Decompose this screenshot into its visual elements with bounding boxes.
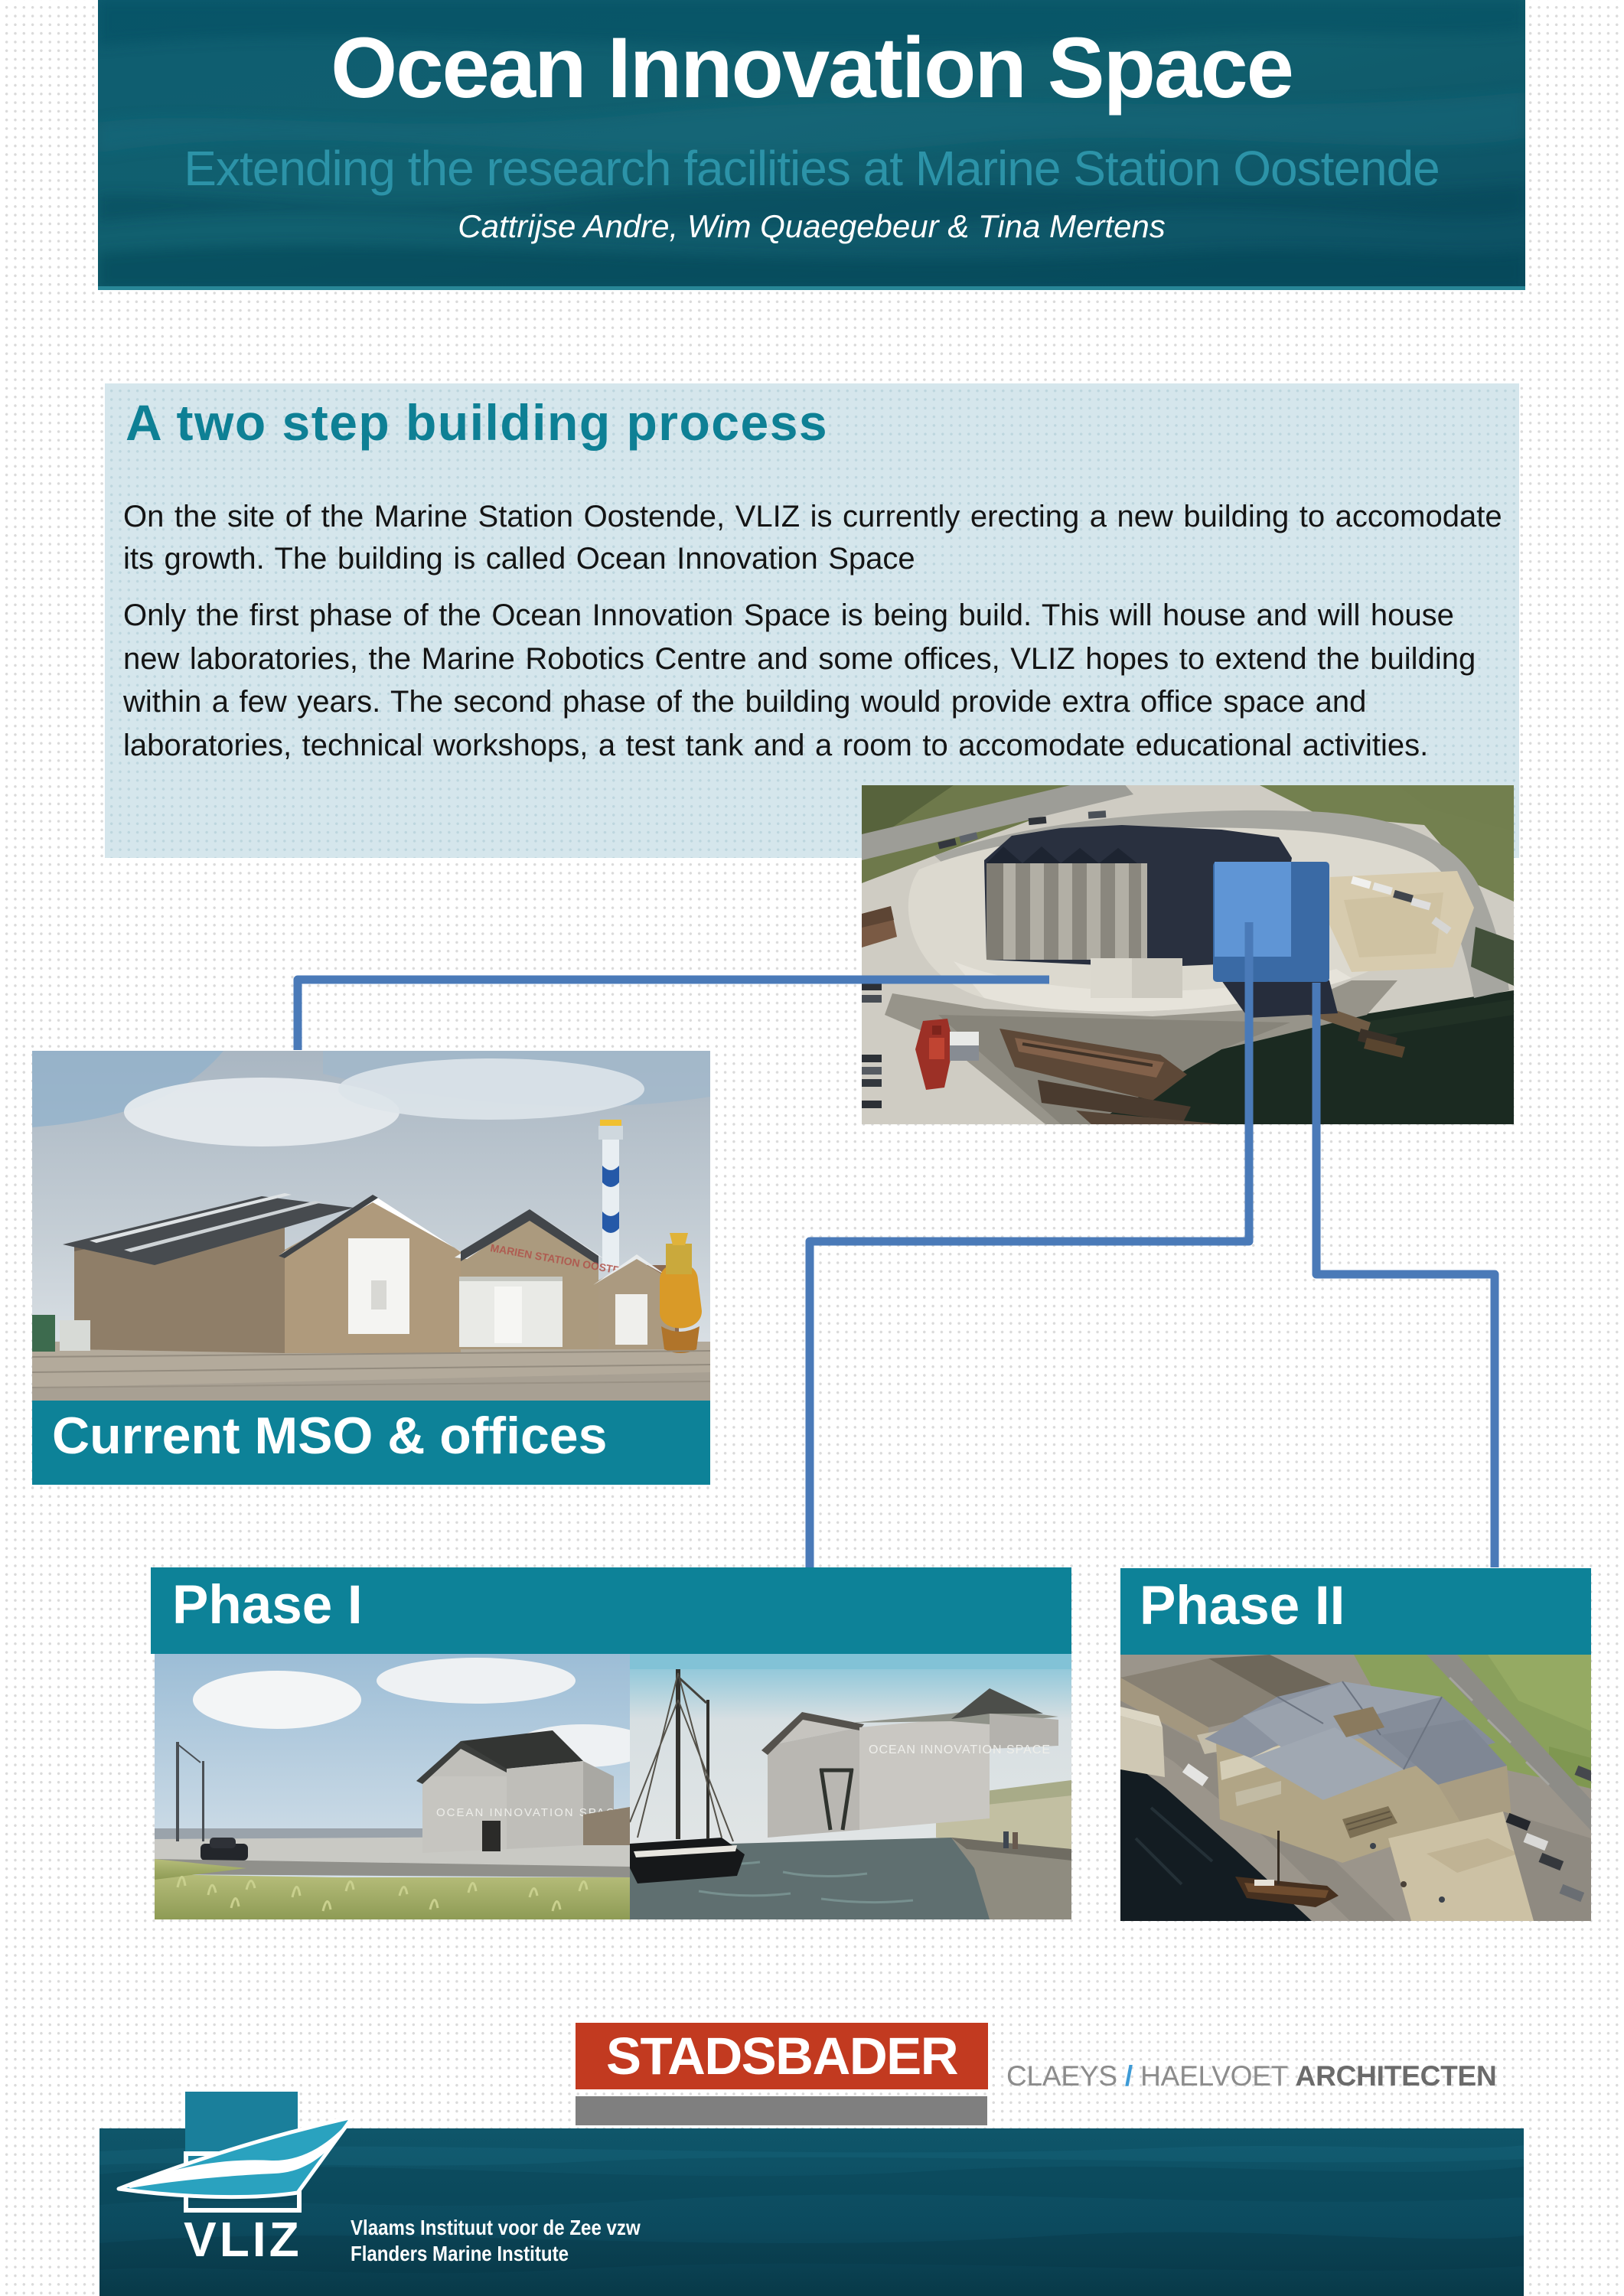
- svg-text:VLIZ: VLIZ: [184, 2212, 302, 2267]
- svg-text:OCEAN INNOVATION SPACE: OCEAN INNOVATION SPACE: [869, 1743, 1051, 1756]
